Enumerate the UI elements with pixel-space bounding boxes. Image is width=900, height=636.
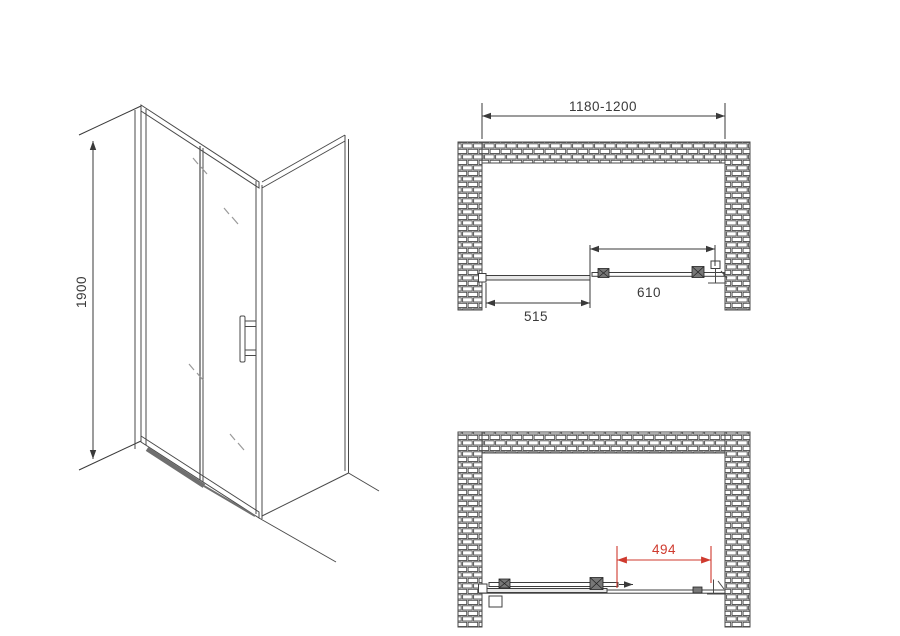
- clear-passage-dimension: 494: [617, 542, 711, 588]
- fixed-panel-dimension-label: 515: [524, 309, 548, 324]
- brick-wall-left: [458, 142, 482, 310]
- brick-wall-back: [482, 142, 725, 163]
- roller-carriage-right: [692, 267, 704, 278]
- plan-view-closed: 1180-1200: [458, 99, 750, 324]
- door-handle: [240, 316, 256, 362]
- height-dimension: 1900: [74, 106, 141, 470]
- bottom-shoe-thin: [204, 486, 255, 516]
- middle-stile: [200, 146, 203, 482]
- brick-wall-right: [725, 142, 750, 310]
- door-isometric: [135, 105, 379, 562]
- side-panel: [262, 135, 349, 516]
- floor-lines: [259, 473, 379, 562]
- door-panel-dimension-label: 610: [637, 285, 661, 300]
- brick-wall-back: [482, 432, 725, 453]
- door-track-closed: [479, 261, 728, 283]
- fixed-panel: [482, 589, 607, 593]
- brick-wall-left: [458, 432, 482, 627]
- glass-shine-marks: [189, 158, 244, 450]
- wall-profile-left: [479, 274, 487, 283]
- roller-carriage-left: [598, 269, 609, 278]
- height-dimension-label: 1900: [74, 276, 89, 308]
- right-stile: [256, 181, 262, 519]
- plan-view-open: 494: [458, 432, 750, 627]
- wall-bracket-below: [489, 596, 502, 607]
- bottom-shoe: [147, 449, 204, 486]
- door-track-open: [479, 578, 727, 608]
- opening-width-dimension-label: 1180-1200: [569, 99, 637, 114]
- technical-drawing-canvas: 1900: [0, 0, 900, 636]
- roller-carriage-right: [590, 578, 603, 590]
- fixed-panel: [482, 276, 590, 281]
- technical-drawing-page: 1900: [0, 0, 900, 636]
- brick-wall-right: [725, 432, 750, 627]
- clear-passage-dimension-label: 494: [652, 542, 676, 557]
- opening-width-dimension: 1180-1200: [482, 99, 725, 139]
- left-stile: [141, 105, 146, 445]
- wall-profile-left: [479, 584, 488, 593]
- roller-carriage-left: [499, 579, 510, 588]
- fixed-panel-dimension: 515: [486, 283, 590, 324]
- elevation-view: 1900: [74, 105, 379, 562]
